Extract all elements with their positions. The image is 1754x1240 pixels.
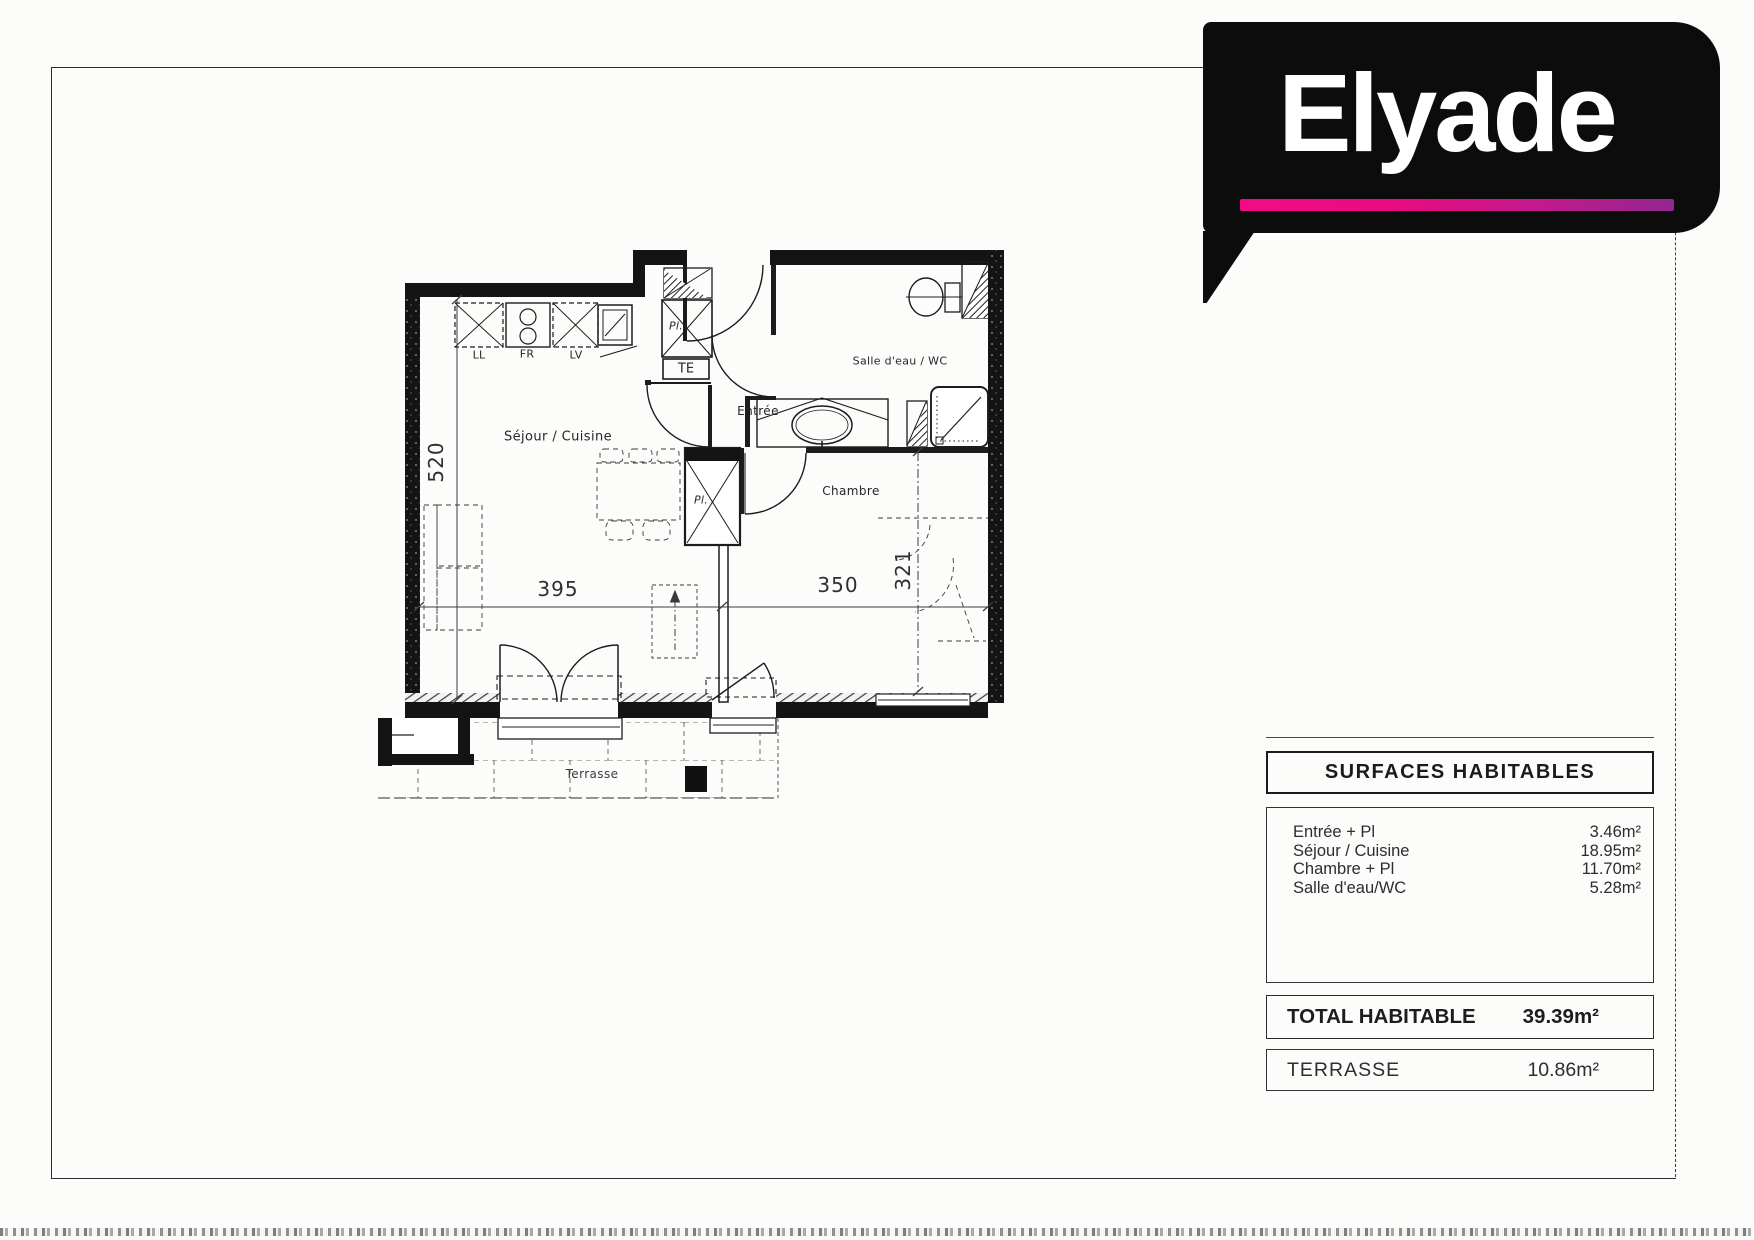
elyade-logo-text: Elyade (1278, 50, 1615, 177)
room-label-entree: Entrée (737, 404, 779, 418)
total-habitable-label: TOTAL HABITABLE (1287, 1005, 1476, 1029)
scanned-floor-plan-page: { "logo": { "text": "Elyade" }, "plan": … (0, 0, 1754, 1240)
door-swings (497, 265, 806, 739)
room-label-sejour-cuisine: Séjour / Cuisine (504, 430, 612, 445)
dimension-chambre-width: 350 (817, 573, 858, 597)
surface-row-entree: Entrée + Pl 3.46m² (1293, 823, 1641, 842)
surface-row-value: 3.46m² (1590, 823, 1641, 842)
surfaces-table-title: SURFACES HABITABLES (1266, 751, 1654, 794)
appliance-label-lv: LV (569, 349, 582, 362)
elyade-logo-underline (1240, 199, 1674, 211)
total-habitable-value: 39.39m² (1523, 1005, 1599, 1029)
vent-arrow (671, 591, 680, 650)
surfaces-table-body: Entrée + Pl 3.46m² Séjour / Cuisine 18.9… (1266, 807, 1654, 983)
surface-row-value: 5.28m² (1590, 879, 1641, 898)
elyade-logo: Elyade (1203, 22, 1720, 233)
room-label-terrasse: Terrasse (566, 767, 619, 781)
surface-row-label: Entrée + Pl (1293, 823, 1375, 842)
total-habitable-box: TOTAL HABITABLE 39.39m² (1266, 995, 1654, 1039)
closet-label-chambre: Pl. (694, 494, 708, 507)
terrasse-value: 10.86m² (1527, 1059, 1599, 1082)
dimension-sejour-height: 520 (424, 441, 448, 482)
dimension-chambre-height: 321 (891, 549, 915, 590)
dimension-sejour-width: 395 (537, 577, 578, 601)
surface-row-label: Salle d'eau/WC (1293, 879, 1406, 898)
room-label-salle-deau: Salle d'eau / WC (853, 355, 948, 368)
terrasse-label: TERRASSE (1287, 1059, 1400, 1082)
room-label-chambre: Chambre (822, 484, 880, 498)
surface-row-sejour: Séjour / Cuisine 18.95m² (1293, 842, 1641, 861)
surface-row-value: 11.70m² (1582, 860, 1641, 879)
surfaces-table-topline (1266, 737, 1654, 738)
terrasse-box: TERRASSE 10.86m² (1266, 1049, 1654, 1091)
surface-row-salledeau: Salle d'eau/WC 5.28m² (1293, 879, 1641, 898)
surfaces-table: SURFACES HABITABLES Entrée + Pl 3.46m² S… (1266, 737, 1654, 1091)
surface-row-chambre: Chambre + Pl 11.70m² (1293, 860, 1641, 879)
surface-row-label: Séjour / Cuisine (1293, 842, 1409, 861)
appliance-label-ll: LL (473, 349, 486, 362)
surface-row-label: Chambre + Pl (1293, 860, 1394, 879)
appliance-label-te: TE (678, 362, 694, 377)
surface-row-value: 18.95m² (1580, 842, 1641, 861)
appliance-label-fr: FR (520, 348, 535, 361)
closet-label-entree: Pl. (669, 320, 683, 333)
